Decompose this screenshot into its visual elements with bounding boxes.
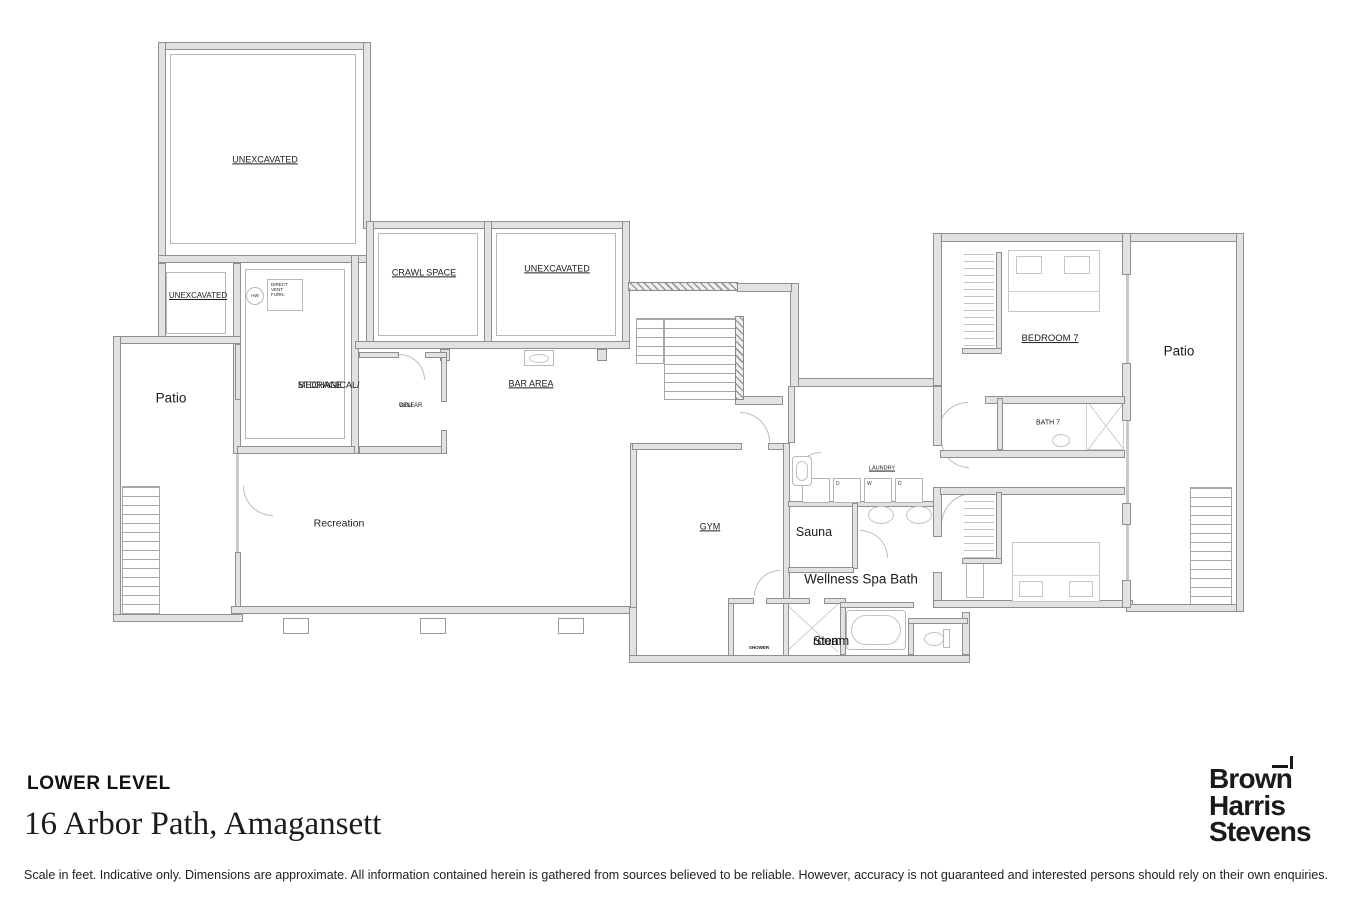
wall: [113, 336, 241, 344]
hatched-wall: [735, 316, 744, 400]
wall: [484, 221, 492, 349]
wall: [158, 42, 371, 50]
door-arc: [860, 530, 888, 558]
wall: [441, 352, 447, 402]
stairs: [1190, 487, 1232, 605]
label-patio-left: Patio: [156, 391, 187, 408]
wall: [783, 443, 790, 600]
wall: [933, 386, 942, 446]
door-arc: [243, 486, 273, 516]
wall: [158, 263, 166, 344]
shower-icon: [1086, 400, 1124, 450]
wall: [1122, 233, 1131, 275]
footing: [558, 618, 584, 634]
brand-logo: Brown Harris Stevens: [1209, 766, 1311, 846]
sink-icon: [906, 506, 932, 524]
wall: [840, 602, 914, 608]
wall: [366, 221, 374, 349]
brand-logo-mark: [1290, 756, 1293, 769]
inner-outline: [170, 54, 356, 244]
stairs: [636, 318, 664, 364]
wall: [996, 252, 1002, 354]
wall: [366, 221, 630, 229]
stairs: [664, 318, 736, 400]
sink-icon: [868, 506, 894, 524]
wall: [1122, 580, 1131, 608]
wall: [737, 283, 792, 292]
brand-line: Harris: [1209, 793, 1311, 820]
brand-logo-mark: [1272, 765, 1288, 768]
label-sauna: Sauna: [796, 525, 832, 541]
dryer-icon: D: [833, 478, 861, 503]
wall: [783, 598, 789, 656]
door-arc: [399, 354, 425, 380]
wall: [425, 352, 447, 358]
wall: [235, 552, 241, 614]
dryer-icon: D: [895, 478, 923, 503]
bar-sink-icon: [524, 350, 554, 366]
wall: [597, 349, 607, 361]
wall: [1122, 363, 1131, 421]
wall: [962, 558, 1002, 564]
glass-line: [1126, 275, 1129, 363]
bed-icon: [1008, 250, 1100, 312]
door-arc: [754, 570, 780, 596]
wall: [997, 398, 1003, 450]
label-wellness-spa-bath: Wellness Spa Bath: [804, 572, 918, 589]
label-bedroom-7: BEDROOM 7: [1021, 333, 1078, 345]
wall: [766, 598, 810, 604]
hot-water-heater-icon: HW: [246, 287, 264, 305]
label-shower-room: SHOWER: [749, 645, 769, 651]
toilet-tank-icon: [943, 629, 950, 648]
inner-outline: [496, 233, 616, 336]
label-laundry: LAUNDRY: [869, 466, 895, 473]
wall: [632, 443, 742, 450]
wall: [996, 492, 1002, 562]
toilet-icon: [1052, 434, 1070, 447]
brand-line: Stevens: [1209, 819, 1311, 846]
laundry-sink-icon: [792, 456, 812, 486]
wall: [351, 255, 359, 454]
wall: [1126, 604, 1243, 612]
stairs: [122, 486, 160, 614]
wall: [790, 283, 799, 387]
wall: [237, 446, 355, 454]
label-patio-right: Patio: [1164, 344, 1195, 361]
wall: [788, 386, 795, 443]
wall: [985, 396, 1125, 404]
wall: [235, 344, 241, 400]
door-arc: [941, 493, 973, 525]
footing: [283, 618, 309, 634]
hatched-wall: [628, 282, 738, 291]
label-crawl-space: CRAWL SPACE: [392, 267, 456, 278]
wall: [359, 352, 399, 358]
brand-line: Brown: [1209, 766, 1311, 793]
door-arc: [938, 402, 968, 432]
wall: [113, 614, 243, 622]
bed-icon: [1012, 542, 1100, 602]
floorplan-page: UNEXCAVATED UNEXCAVATED CRAWL SPACE UNEX…: [0, 0, 1350, 904]
bathtub-icon: [846, 610, 906, 650]
inner-outline: [966, 560, 984, 598]
wall: [1236, 233, 1244, 612]
glass-line: [1126, 525, 1129, 580]
floor-plan: UNEXCAVATED UNEXCAVATED CRAWL SPACE UNEX…: [0, 0, 1350, 760]
wall: [629, 655, 970, 663]
inner-outline: [378, 233, 478, 336]
wall: [933, 233, 1243, 242]
label-unexcavated-mid: UNEXCAVATED: [524, 263, 590, 274]
wall: [355, 341, 630, 349]
level-title: LOWER LEVEL: [27, 773, 171, 795]
furnace-icon: DIRECT VENT FURN.: [267, 279, 303, 311]
label-gym: GYM: [700, 521, 721, 532]
label-unexcavated-large: UNEXCAVATED: [232, 154, 298, 165]
label-unexcavated-small: UNEXCAVATED: [169, 291, 227, 301]
wall: [113, 336, 121, 622]
wall: [940, 450, 1125, 458]
footing: [420, 618, 446, 634]
wall: [852, 503, 858, 569]
glass-line: [1126, 421, 1129, 503]
wall: [359, 446, 447, 454]
label-bar-area: BAR AREA: [508, 378, 553, 389]
wall: [363, 42, 371, 229]
wall: [933, 233, 942, 386]
washer-icon: W: [864, 478, 892, 503]
wall: [441, 430, 447, 454]
wall: [908, 618, 968, 624]
toilet-icon: [924, 632, 944, 646]
address-title: 16 Arbor Path, Amagansett: [24, 806, 381, 843]
wall: [790, 378, 940, 387]
closet-rod: [964, 254, 994, 350]
wall: [158, 42, 166, 263]
door-arc: [740, 412, 770, 442]
wall: [962, 348, 1002, 354]
wall: [158, 255, 371, 263]
wall: [728, 598, 754, 604]
label-recreation: Recreation: [314, 517, 365, 530]
wall: [231, 606, 637, 614]
disclaimer-text: Scale in feet. Indicative only. Dimensio…: [24, 868, 1334, 882]
wall: [1122, 503, 1131, 525]
label-bath-7: BATH 7: [1036, 420, 1060, 429]
wall: [728, 598, 734, 656]
wall: [940, 487, 1125, 495]
wall: [630, 443, 637, 608]
inner-outline: [166, 272, 226, 334]
